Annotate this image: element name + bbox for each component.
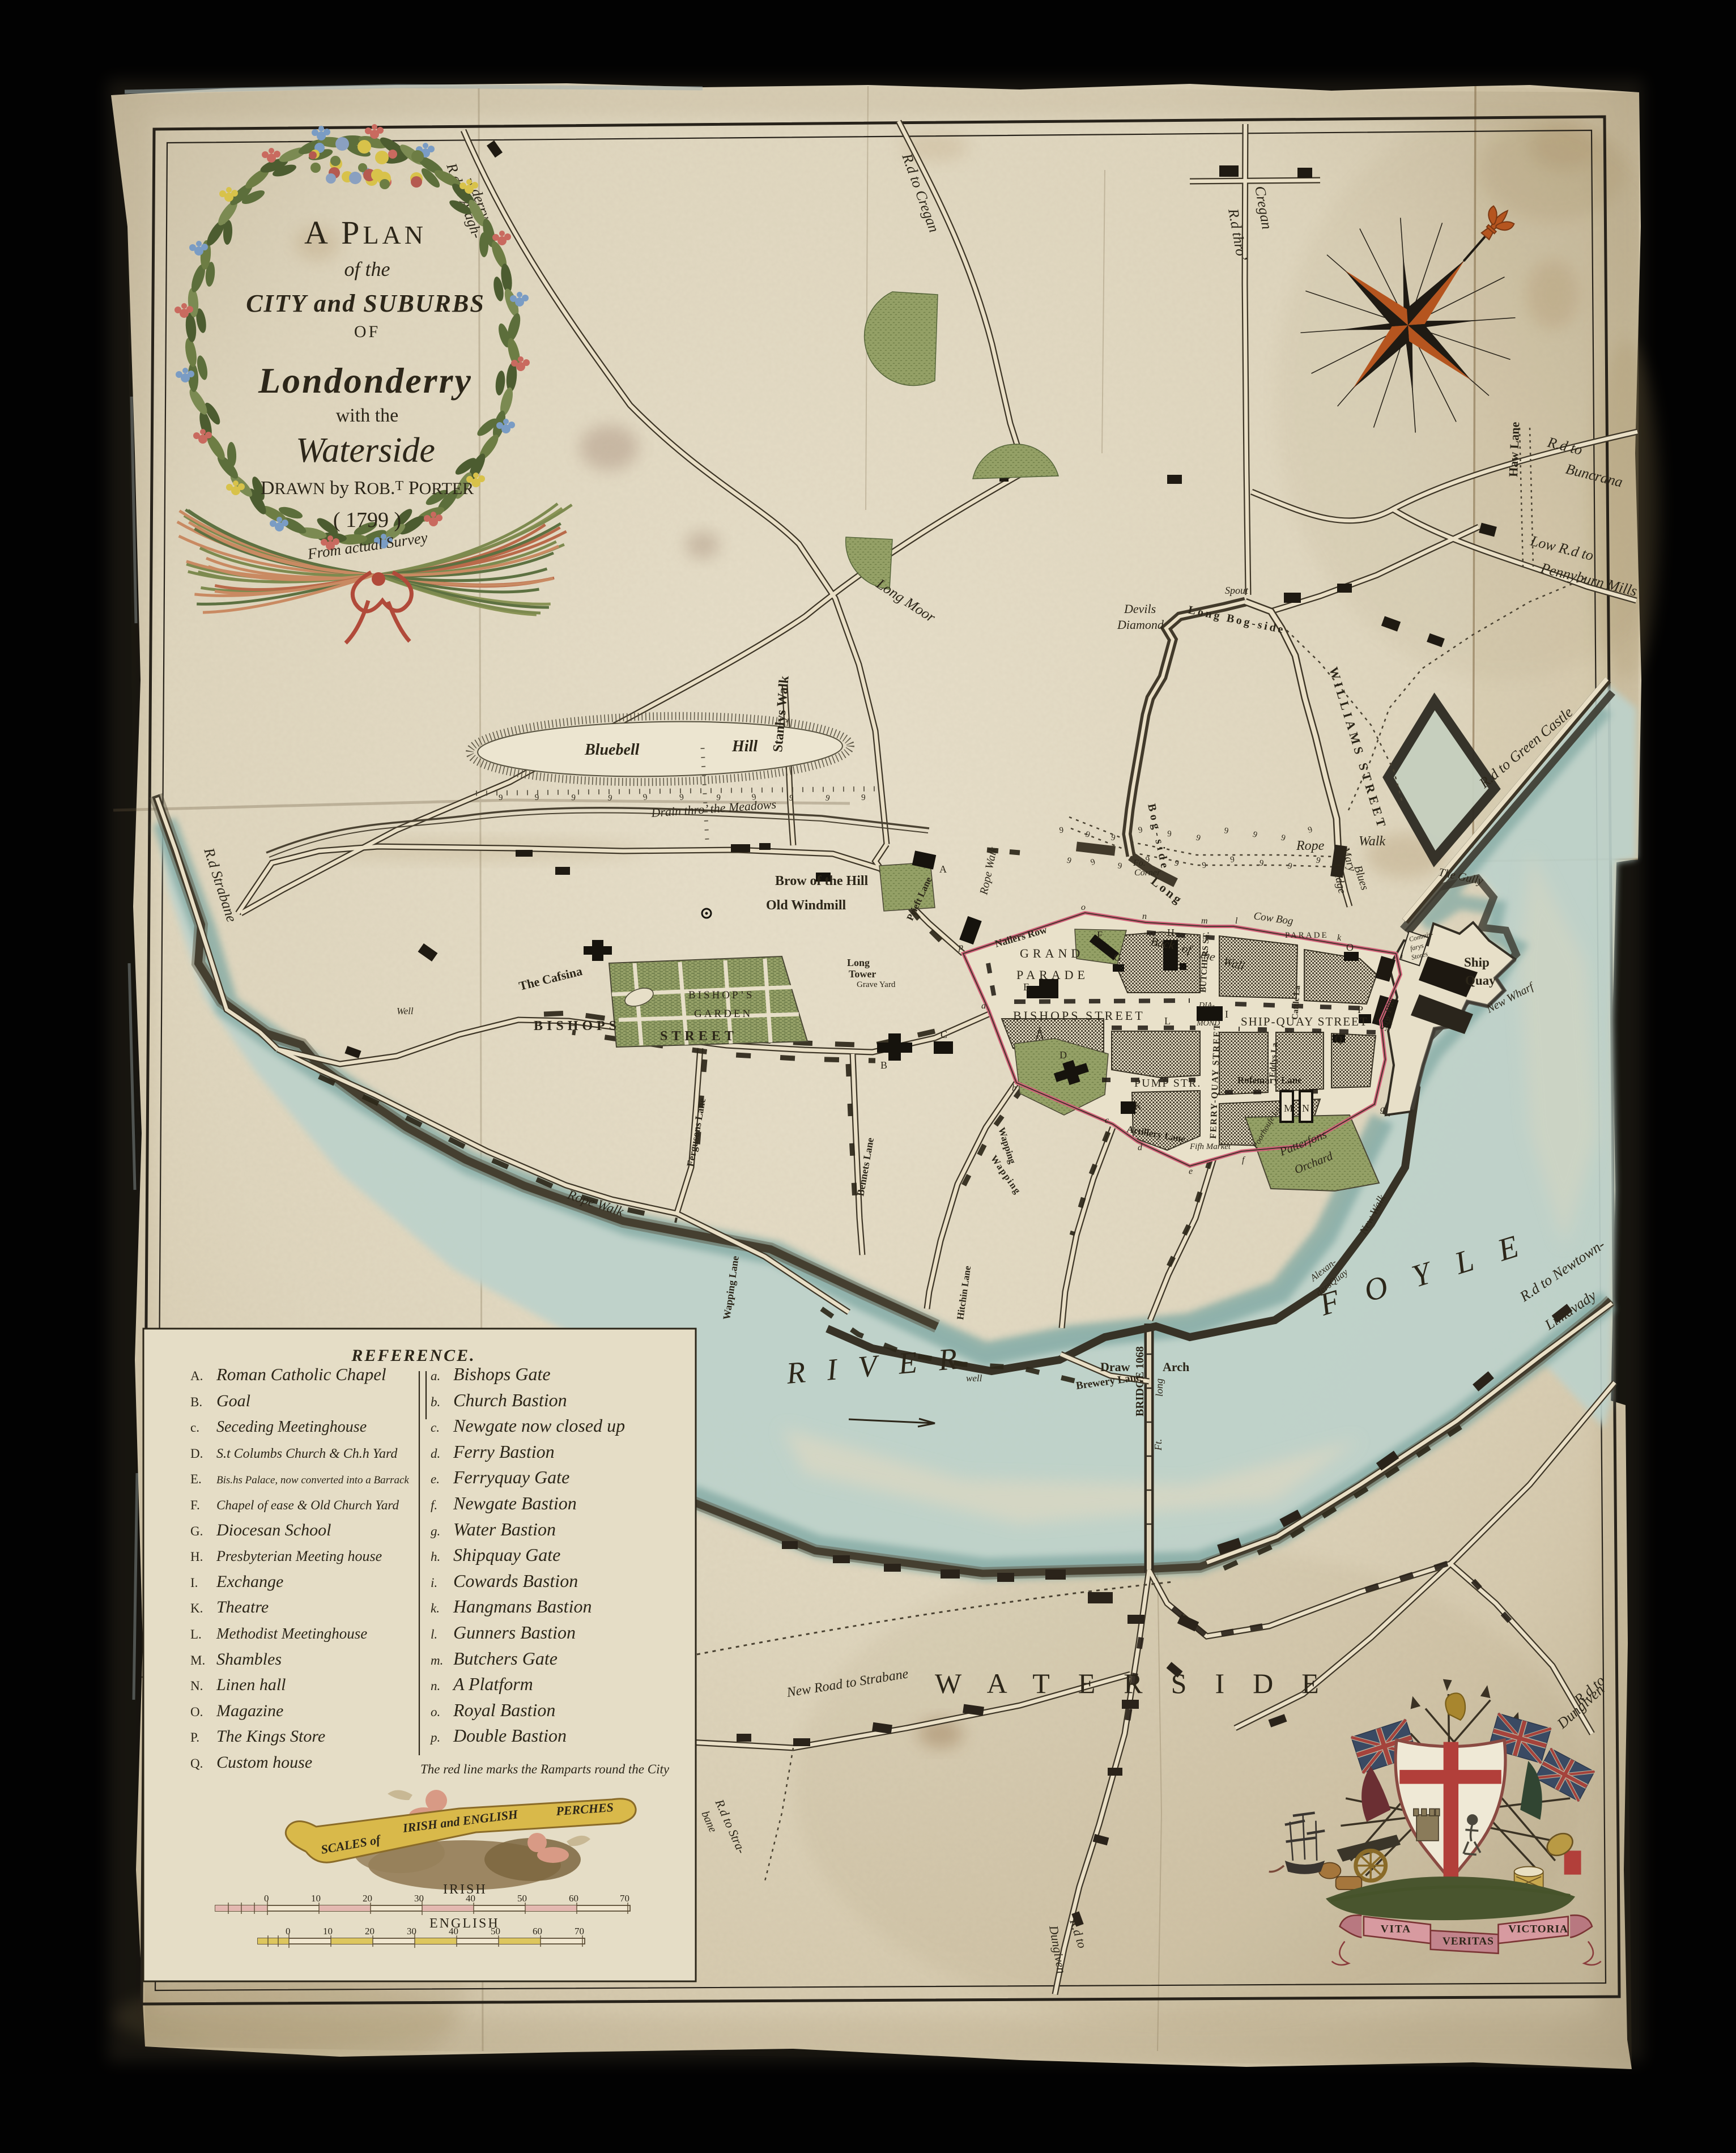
svg-text:Arch: Arch [1163, 1360, 1189, 1374]
svg-text:k.: k. [431, 1601, 440, 1615]
svg-text:Well: Well [397, 1006, 414, 1016]
svg-text:Ship: Ship [1464, 955, 1490, 969]
svg-text:p: p [958, 942, 963, 952]
svg-text:M: M [1284, 1103, 1293, 1114]
svg-text:Exchange: Exchange [216, 1572, 283, 1591]
svg-text:a: a [981, 1001, 986, 1011]
svg-text:F.: F. [190, 1498, 200, 1512]
svg-text:9: 9 [1167, 829, 1172, 839]
svg-text:GRAND: GRAND [1020, 946, 1084, 960]
svg-text:M.: M. [190, 1653, 205, 1667]
svg-text:Linen hall: Linen hall [216, 1675, 286, 1694]
svg-text:10: 10 [323, 1926, 333, 1937]
svg-text:Hangmans Bastion: Hangmans Bastion [453, 1596, 592, 1616]
svg-text:c.: c. [431, 1420, 440, 1435]
svg-text:B: B [880, 1060, 887, 1071]
svg-text:Theatre: Theatre [216, 1598, 269, 1616]
svg-text:ENGLISH: ENGLISH [429, 1916, 500, 1931]
svg-text:70: 70 [620, 1893, 629, 1904]
svg-text:60: 60 [569, 1893, 578, 1904]
svg-text:CITY and SUBURBS: CITY and SUBURBS [246, 290, 485, 317]
svg-text:L: L [1164, 1015, 1171, 1027]
svg-text:Hill: Hill [731, 738, 758, 755]
svg-text:Haw Lane: Haw Lane [1506, 422, 1522, 477]
svg-text:k: k [1337, 933, 1342, 943]
svg-text:20: 20 [363, 1893, 372, 1904]
svg-text:f.: f. [431, 1498, 437, 1512]
svg-text:N.: N. [190, 1679, 203, 1693]
svg-text:Rope: Rope [1296, 839, 1325, 853]
svg-text:10: 10 [311, 1893, 321, 1904]
svg-text:B.: B. [190, 1395, 202, 1409]
svg-text:The red line marks the Rampart: The red line marks the Ramparts round th… [420, 1762, 670, 1776]
svg-text:Grave Yard: Grave Yard [857, 980, 896, 989]
svg-text:Corner: Corner [1134, 868, 1161, 878]
svg-text:with the: with the [336, 405, 398, 426]
svg-text:e: e [1189, 1167, 1193, 1176]
svg-text:well: well [966, 1373, 982, 1384]
svg-text:c: c [1105, 1116, 1109, 1125]
svg-text:Q: Q [1335, 1033, 1342, 1045]
svg-text:OF: OF [354, 322, 380, 341]
svg-text:o.: o. [431, 1705, 440, 1719]
svg-text:20: 20 [365, 1926, 375, 1937]
svg-text:Newgate now closed up: Newgate now closed up [453, 1415, 625, 1436]
svg-text:long: long [1154, 1378, 1165, 1397]
svg-text:BISHOPS: BISHOPS [534, 1019, 620, 1033]
svg-text:E.: E. [190, 1472, 202, 1486]
svg-text:Brow of the Hill: Brow of the Hill [775, 874, 869, 888]
svg-text:GARDEN: GARDEN [694, 1008, 752, 1020]
svg-text:p.: p. [429, 1730, 440, 1744]
svg-text:O: O [1346, 942, 1354, 953]
svg-text:of the: of the [344, 258, 390, 280]
svg-text:Tower: Tower [849, 968, 876, 980]
svg-text:n.: n. [431, 1679, 440, 1693]
svg-text:Ferry Bastion: Ferry Bastion [453, 1441, 555, 1462]
svg-text:S.t Columbs Church & Ch.h Yard: S.t Columbs Church & Ch.h Yard [216, 1446, 398, 1461]
svg-text:d.: d. [431, 1446, 440, 1461]
svg-text:m: m [1201, 916, 1208, 926]
svg-text:Shipquay Gate: Shipquay Gate [453, 1544, 560, 1565]
svg-text:h.: h. [431, 1550, 440, 1564]
svg-text:I.: I. [190, 1576, 198, 1590]
svg-text:Presbyterian Meeting house: Presbyterian Meeting house [216, 1548, 382, 1564]
svg-text:REFERENCE.: REFERENCE. [351, 1346, 475, 1365]
svg-text:i: i [1401, 951, 1403, 961]
svg-text:Seceding Meetinghouse: Seceding Meetinghouse [216, 1418, 367, 1436]
svg-text:P: P [1358, 1004, 1363, 1015]
svg-text:Draw: Draw [1100, 1360, 1130, 1374]
svg-text:b.: b. [431, 1395, 440, 1409]
svg-text:Cowards Bastion: Cowards Bastion [453, 1571, 578, 1591]
svg-text:E: E [1023, 981, 1029, 993]
svg-text:a.: a. [431, 1369, 440, 1383]
svg-text:BRIDGE 1068: BRIDGE 1068 [1134, 1346, 1146, 1416]
svg-text:The Kings Store: The Kings Store [216, 1727, 325, 1746]
svg-text:Chapel of ease & Old Church Ya: Chapel of ease & Old Church Yard [216, 1498, 399, 1512]
svg-text:Bishops Gate: Bishops Gate [453, 1364, 551, 1384]
svg-text:Ft.: Ft. [1152, 1439, 1164, 1452]
svg-text:Londonderry: Londonderry [258, 360, 473, 401]
svg-text:Bluebell: Bluebell [584, 741, 640, 759]
svg-text:VICTORIA: VICTORIA [1508, 1924, 1568, 1935]
svg-text:PARADE: PARADE [1016, 968, 1089, 982]
svg-text:Fifh Market: Fifh Market [1189, 1142, 1231, 1151]
svg-text:40: 40 [466, 1893, 475, 1904]
svg-text:SHIP-QUAY STREET: SHIP-QUAY STREET [1241, 1015, 1368, 1028]
svg-text:Fo.: Fo. [1133, 858, 1146, 868]
svg-text:N: N [1302, 1103, 1309, 1114]
svg-text:A Platform: A Platform [452, 1674, 533, 1694]
svg-text:Newgate Bastion: Newgate Bastion [453, 1493, 577, 1513]
svg-text:e.: e. [431, 1472, 440, 1486]
svg-text:70: 70 [575, 1926, 584, 1937]
svg-text:40: 40 [449, 1926, 458, 1937]
svg-text:Walk: Walk [1359, 834, 1385, 849]
svg-text:Butchers Gate: Butchers Gate [453, 1648, 558, 1669]
svg-text:60: 60 [533, 1926, 542, 1937]
svg-text:Bis.hs Palace, now converted i: Bis.hs Palace, now converted into a Barr… [216, 1474, 409, 1486]
svg-text:Church Bastion: Church Bastion [453, 1390, 567, 1410]
svg-text:l.: l. [431, 1627, 437, 1641]
svg-text:K: K [1134, 1100, 1142, 1112]
svg-text:Ferryquay Gate: Ferryquay Gate [453, 1467, 569, 1487]
svg-text:Water Bastion: Water Bastion [453, 1519, 556, 1539]
svg-text:Roman Catholic Chapel: Roman Catholic Chapel [216, 1364, 386, 1384]
svg-text:PARADE: PARADE [1285, 931, 1329, 940]
svg-text:DRAWN by ROB.T PORTER: DRAWN by ROB.T PORTER [261, 478, 474, 499]
svg-text:H.: H. [190, 1550, 203, 1564]
svg-text:PUMP STR.: PUMP STR. [1134, 1077, 1201, 1090]
svg-text:Gunners Bastion: Gunners Bastion [453, 1622, 576, 1643]
svg-text:9: 9 [1059, 826, 1064, 835]
svg-text:STREET: STREET [660, 1029, 738, 1044]
svg-text:A: A [939, 863, 947, 875]
svg-text:g: g [1380, 1104, 1385, 1114]
svg-text:DIA-: DIA- [1198, 1001, 1215, 1010]
svg-text:9: 9 [571, 793, 576, 803]
svg-text:Long: Long [847, 957, 870, 968]
svg-text:m.: m. [431, 1653, 443, 1667]
svg-text:Old Windmill: Old Windmill [766, 898, 846, 913]
svg-text:Devils: Devils [1124, 602, 1156, 616]
svg-text:VITA: VITA [1381, 1924, 1411, 1935]
svg-text:Methodist Meetinghouse: Methodist Meetinghouse [216, 1625, 367, 1642]
svg-text:9: 9 [499, 793, 503, 802]
svg-text:i.: i. [431, 1576, 437, 1590]
svg-text:h: h [1388, 1017, 1393, 1027]
svg-text:0: 0 [286, 1926, 291, 1937]
svg-text:Magazine: Magazine [216, 1701, 283, 1720]
svg-text:O.: O. [190, 1705, 203, 1719]
svg-text:G: G [1114, 952, 1121, 963]
svg-text:c.: c. [190, 1420, 199, 1435]
svg-text:Q.: Q. [190, 1756, 203, 1771]
svg-text:P.: P. [190, 1730, 199, 1744]
svg-text:Shambles: Shambles [216, 1650, 282, 1669]
svg-text:Diocesan School: Diocesan School [216, 1521, 331, 1539]
svg-text:H: H [1167, 927, 1175, 938]
svg-text:d: d [1138, 1143, 1143, 1152]
svg-text:BISHOP’S: BISHOP’S [688, 989, 754, 1001]
svg-text:VERITAS: VERITAS [1443, 1935, 1494, 1947]
svg-text:D: D [1060, 1049, 1067, 1061]
svg-text:IRISH: IRISH [443, 1882, 487, 1897]
svg-text:( 1799 ): ( 1799 ) [333, 508, 401, 532]
svg-text:l: l [1235, 916, 1238, 926]
svg-text:G.: G. [190, 1524, 203, 1538]
svg-text:Waterside: Waterside [296, 431, 435, 470]
svg-text:n: n [1142, 912, 1147, 921]
svg-text:50: 50 [491, 1926, 500, 1937]
svg-text:Spout: Spout [1225, 585, 1249, 596]
svg-text:b: b [1012, 1083, 1016, 1093]
svg-text:9: 9 [534, 793, 539, 802]
svg-text:Custom house: Custom house [216, 1753, 312, 1772]
svg-text:Goal: Goal [216, 1392, 250, 1410]
svg-text:C: C [941, 1029, 947, 1040]
svg-text:9: 9 [861, 793, 866, 802]
svg-text:Diamond: Diamond [1117, 618, 1164, 632]
svg-text:A.: A. [190, 1369, 203, 1383]
svg-text:L.: L. [190, 1627, 202, 1641]
svg-text:I: I [1225, 1009, 1228, 1020]
svg-text:Quay: Quay [1465, 973, 1496, 988]
svg-text:Double Bastion: Double Bastion [453, 1725, 567, 1746]
svg-text:F: F [1097, 929, 1103, 941]
svg-text:g.: g. [431, 1524, 440, 1538]
svg-text:WATERSIDE: WATERSIDE [935, 1667, 1347, 1699]
svg-text:o: o [1081, 903, 1086, 912]
svg-text:Royal Bastion: Royal Bastion [453, 1700, 555, 1720]
svg-text:50: 50 [517, 1893, 527, 1904]
svg-text:K.: K. [190, 1601, 203, 1615]
svg-text:0: 0 [264, 1893, 269, 1904]
svg-text:BISHOPS STREET: BISHOPS STREET [1013, 1009, 1145, 1023]
svg-text:D.: D. [190, 1446, 203, 1461]
